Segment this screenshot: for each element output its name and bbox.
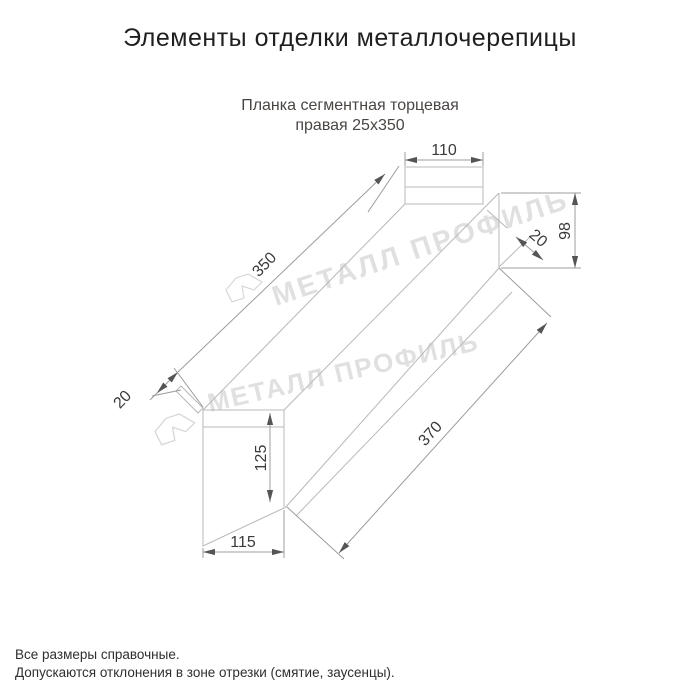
bottom-hem-edge	[296, 292, 512, 516]
right-hem-edge	[499, 236, 531, 267]
dim-label-110: 110	[431, 142, 457, 159]
dim-label-125: 125	[253, 445, 270, 472]
watermark-text-upper: МЕТАЛЛ ПРОФИЛЬ	[268, 184, 573, 312]
metall-profil-logo-icon	[226, 274, 262, 302]
technical-drawing: МЕТАЛЛ ПРОФИЛЬ МЕТАЛЛ ПРОФИЛЬ	[0, 0, 700, 700]
dim-label-20-left: 20	[110, 387, 135, 412]
footer-notes: Все размеры справочные. Допускаются откл…	[15, 646, 395, 682]
mid-fold-edge	[284, 193, 499, 410]
dim-label-20-right: 20	[526, 226, 551, 251]
dim-label-115: 115	[230, 534, 256, 551]
page: { "page": { "title": "Элементы отделки м…	[0, 0, 700, 700]
footer-note-2: Допускаются отклонения в зоне отрезки (с…	[15, 664, 395, 682]
left-end-face	[203, 410, 284, 546]
top-flange-face	[405, 167, 483, 204]
metall-profil-logo-icon	[155, 414, 195, 445]
dim-label-98: 98	[557, 222, 574, 240]
footer-note-1: Все размеры справочные.	[15, 646, 395, 664]
watermark-upper: МЕТАЛЛ ПРОФИЛЬ	[226, 184, 573, 312]
watermark-text-lower: МЕТАЛЛ ПРОФИЛЬ	[205, 326, 482, 418]
dim-label-370: 370	[415, 418, 446, 449]
dim-label-350: 350	[249, 249, 280, 280]
